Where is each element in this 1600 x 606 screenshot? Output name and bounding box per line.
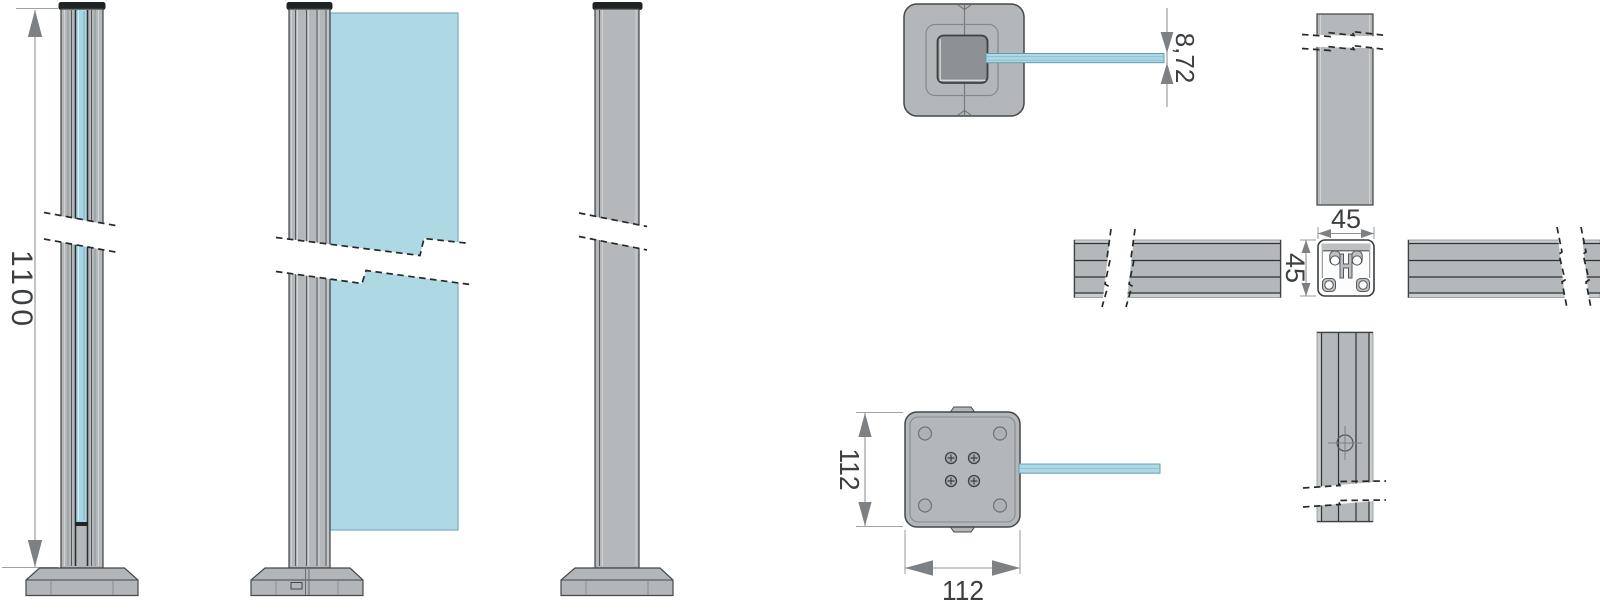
arrow-up-icon [1302,240,1311,253]
dimension-baseplate-width: 112 [905,530,1020,606]
view-post-with-panel [251,2,470,596]
technical-drawing-canvas: 1100 [0,0,1600,606]
screw-icon [969,476,980,487]
glass-edge [76,10,86,522]
view-post-side [561,2,673,596]
dim-label-baseplate-depth: 112 [834,449,865,491]
dim-label-profile-width: 45 [1331,204,1361,234]
view-clamp-top: 8,72 [904,4,1200,116]
dim-label-profile-height: 45 [1280,253,1310,283]
arrow-right-icon [992,560,1020,576]
dim-label-post-height: 1100 [5,250,38,326]
profile-left [1074,229,1281,307]
dimension-baseplate-depth: 112 [834,413,903,527]
dimension-post-height: 1100 [2,9,58,568]
post-3 [561,2,673,596]
screw-icon [946,476,957,487]
post-1 [26,2,138,596]
post-base [251,568,363,596]
clamp-block [938,36,988,84]
arrow-up-icon [858,413,871,437]
break-lines [44,213,118,253]
dimension-profile-width: 45 [1318,204,1374,239]
arrow-right-icon [1361,229,1374,238]
profile-bottom [1303,332,1386,522]
view-cross-node: 45 45 [1074,14,1600,522]
arrow-down-icon [1302,283,1311,296]
post-base [26,568,138,596]
dim-label-baseplate-width: 112 [942,575,984,606]
technical-drawing: 1100 [0,0,1600,606]
arrow-down-icon [28,540,42,567]
post-base [561,568,673,596]
post-body [595,9,639,568]
glass-end [75,522,88,526]
arrow-left-icon [905,560,933,576]
profile-right [1408,227,1600,308]
view-base-plate-top: 112 112 [834,407,1160,606]
glass-channel [75,10,88,566]
arrow-up-icon [28,10,42,37]
screw-icon [969,453,980,464]
glass-strip [1019,464,1160,473]
arrow-down-icon [858,502,871,526]
profile-top [1302,14,1386,205]
screw-icon [946,453,957,464]
dim-label-glass-thickness: 8,72 [1170,33,1200,84]
view-post-front-glass-edge: 1100 [2,2,138,596]
dimension-glass-thickness: 8,72 [1161,8,1200,107]
dimension-profile-height: 45 [1280,240,1316,296]
break-lines [1303,481,1386,507]
profile-cross-section [1318,240,1374,296]
glass-strip [986,54,1164,63]
arrow-left-icon [1318,229,1331,238]
